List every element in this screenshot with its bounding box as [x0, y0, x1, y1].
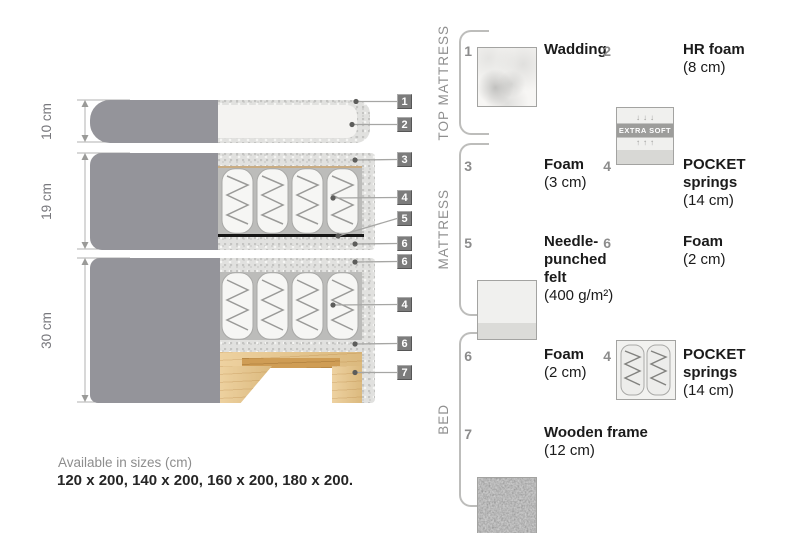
legend-num-foam2: 6 — [595, 235, 611, 251]
felt-swatch — [477, 477, 537, 533]
legend-name-bed-springs: POCKET springs — [683, 346, 765, 382]
callout-tag-5: 5 — [397, 211, 412, 226]
legend-num-hr-foam: 2 — [595, 43, 611, 59]
wadding-swatch — [477, 47, 537, 107]
legend-detail-springs: (14 cm) — [683, 192, 734, 210]
group-title-mattress: MATTRESS — [432, 143, 454, 316]
group-title-bed: BED — [432, 332, 454, 507]
legend-name-wadding: Wadding — [544, 41, 626, 59]
legend-detail-foam3: (3 cm) — [544, 174, 587, 192]
legend-name-wood: Wooden frame — [544, 424, 674, 442]
legend-num-foam3: 3 — [456, 158, 472, 174]
legend-detail-wood: (12 cm) — [544, 442, 595, 460]
callout-tag-1: 1 — [397, 94, 412, 109]
callout-tag-4: 4 — [397, 190, 412, 205]
callout-tag-6c: 6 — [397, 336, 412, 351]
bed-construction-infographic: 10 cm 19 cm 30 cm — [0, 0, 800, 533]
legend-num-wood: 7 — [456, 426, 472, 442]
available-sizes-label: Available in sizes (cm) — [58, 455, 192, 470]
legend-num-springs: 4 — [595, 158, 611, 174]
legend-detail-bed-springs: (14 cm) — [683, 382, 734, 400]
foam3-swatch — [477, 280, 537, 340]
legend-detail-felt: (400 g/m²) — [544, 287, 613, 305]
callout-tag-3: 3 — [397, 152, 412, 167]
legend-num-bed-foam: 6 — [456, 348, 472, 364]
legend-detail-bed-foam: (2 cm) — [544, 364, 587, 382]
callout-tag-7: 7 — [397, 365, 412, 380]
legend-num-felt: 5 — [456, 235, 472, 251]
legend-name-felt: Needle-punched felt — [544, 233, 626, 287]
legend-name-bed-foam: Foam — [544, 346, 626, 364]
legend-detail-foam2: (2 cm) — [683, 251, 726, 269]
legend-name-foam2: Foam — [683, 233, 765, 251]
callout-tag-6b: 6 — [397, 254, 412, 269]
available-sizes-values: 120 x 200, 140 x 200, 160 x 200, 180 x 2… — [57, 472, 353, 489]
group-title-top-mattress: TOP MATTRESS — [432, 30, 454, 135]
legend-num-wadding: 1 — [456, 43, 472, 59]
arrows-up: ↑↑↑ — [633, 139, 657, 147]
callout-tag-4b: 4 — [397, 297, 412, 312]
extra-soft-badge: EXTRA SOFT — [616, 123, 674, 138]
legend-detail-hr-foam: (8 cm) — [683, 59, 726, 77]
legend-name-hr-foam: HR foam — [683, 41, 765, 59]
arrows-down: ↓↓↓ — [633, 114, 657, 122]
legend-name-foam3: Foam — [544, 156, 626, 174]
callout-tag-6: 6 — [397, 236, 412, 251]
callout-tag-2: 2 — [397, 117, 412, 132]
legend-num-bed-springs: 4 — [595, 348, 611, 364]
legend-name-springs: POCKET springs — [683, 156, 765, 192]
